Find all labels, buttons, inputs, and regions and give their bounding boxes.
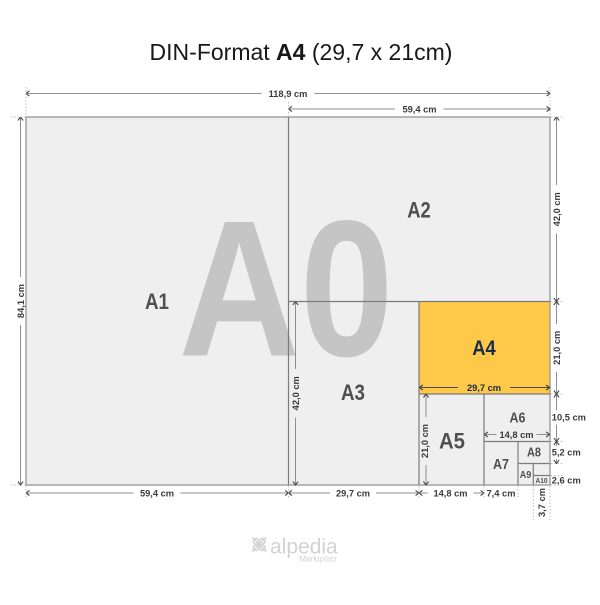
svg-text:DIN-Format A4 (29,7 x 21cm): DIN-Format A4 (29,7 x 21cm) bbox=[150, 39, 453, 65]
svg-text:A9: A9 bbox=[520, 469, 532, 481]
svg-text:10,5 cm: 10,5 cm bbox=[552, 413, 586, 423]
svg-text:29,7 cm: 29,7 cm bbox=[467, 383, 501, 393]
svg-text:A1: A1 bbox=[145, 289, 169, 314]
svg-text:29,7 cm: 29,7 cm bbox=[336, 488, 370, 498]
svg-text:A6: A6 bbox=[510, 410, 526, 427]
svg-text:118,9 cm: 118,9 cm bbox=[269, 89, 308, 99]
svg-text:21,0 cm: 21,0 cm bbox=[420, 424, 430, 458]
svg-text:A2: A2 bbox=[407, 198, 431, 223]
svg-text:A0: A0 bbox=[179, 181, 394, 398]
svg-text:A7: A7 bbox=[493, 456, 509, 473]
svg-text:14,8 cm: 14,8 cm bbox=[433, 488, 467, 498]
svg-text:21,0 cm: 21,0 cm bbox=[552, 331, 562, 365]
svg-text:2,6 cm: 2,6 cm bbox=[552, 476, 581, 486]
svg-text:59,4 cm: 59,4 cm bbox=[140, 488, 174, 498]
svg-text:42,0 cm: 42,0 cm bbox=[552, 192, 562, 226]
svg-text:84,1 cm: 84,1 cm bbox=[16, 284, 26, 318]
svg-text:A5: A5 bbox=[439, 429, 465, 454]
svg-text:42,0 cm: 42,0 cm bbox=[291, 376, 301, 410]
svg-text:A8: A8 bbox=[527, 445, 541, 460]
svg-text:14,8 cm: 14,8 cm bbox=[499, 430, 533, 440]
svg-text:5,2 cm: 5,2 cm bbox=[552, 448, 581, 458]
svg-text:A4: A4 bbox=[472, 337, 496, 360]
svg-text:3,7 cm: 3,7 cm bbox=[537, 488, 547, 517]
svg-text:Marktplatz: Marktplatz bbox=[299, 555, 337, 564]
svg-text:59,4 cm: 59,4 cm bbox=[402, 104, 436, 114]
svg-text:7,4 cm: 7,4 cm bbox=[487, 488, 516, 498]
svg-text:A10: A10 bbox=[536, 478, 548, 485]
svg-text:A3: A3 bbox=[341, 380, 365, 405]
